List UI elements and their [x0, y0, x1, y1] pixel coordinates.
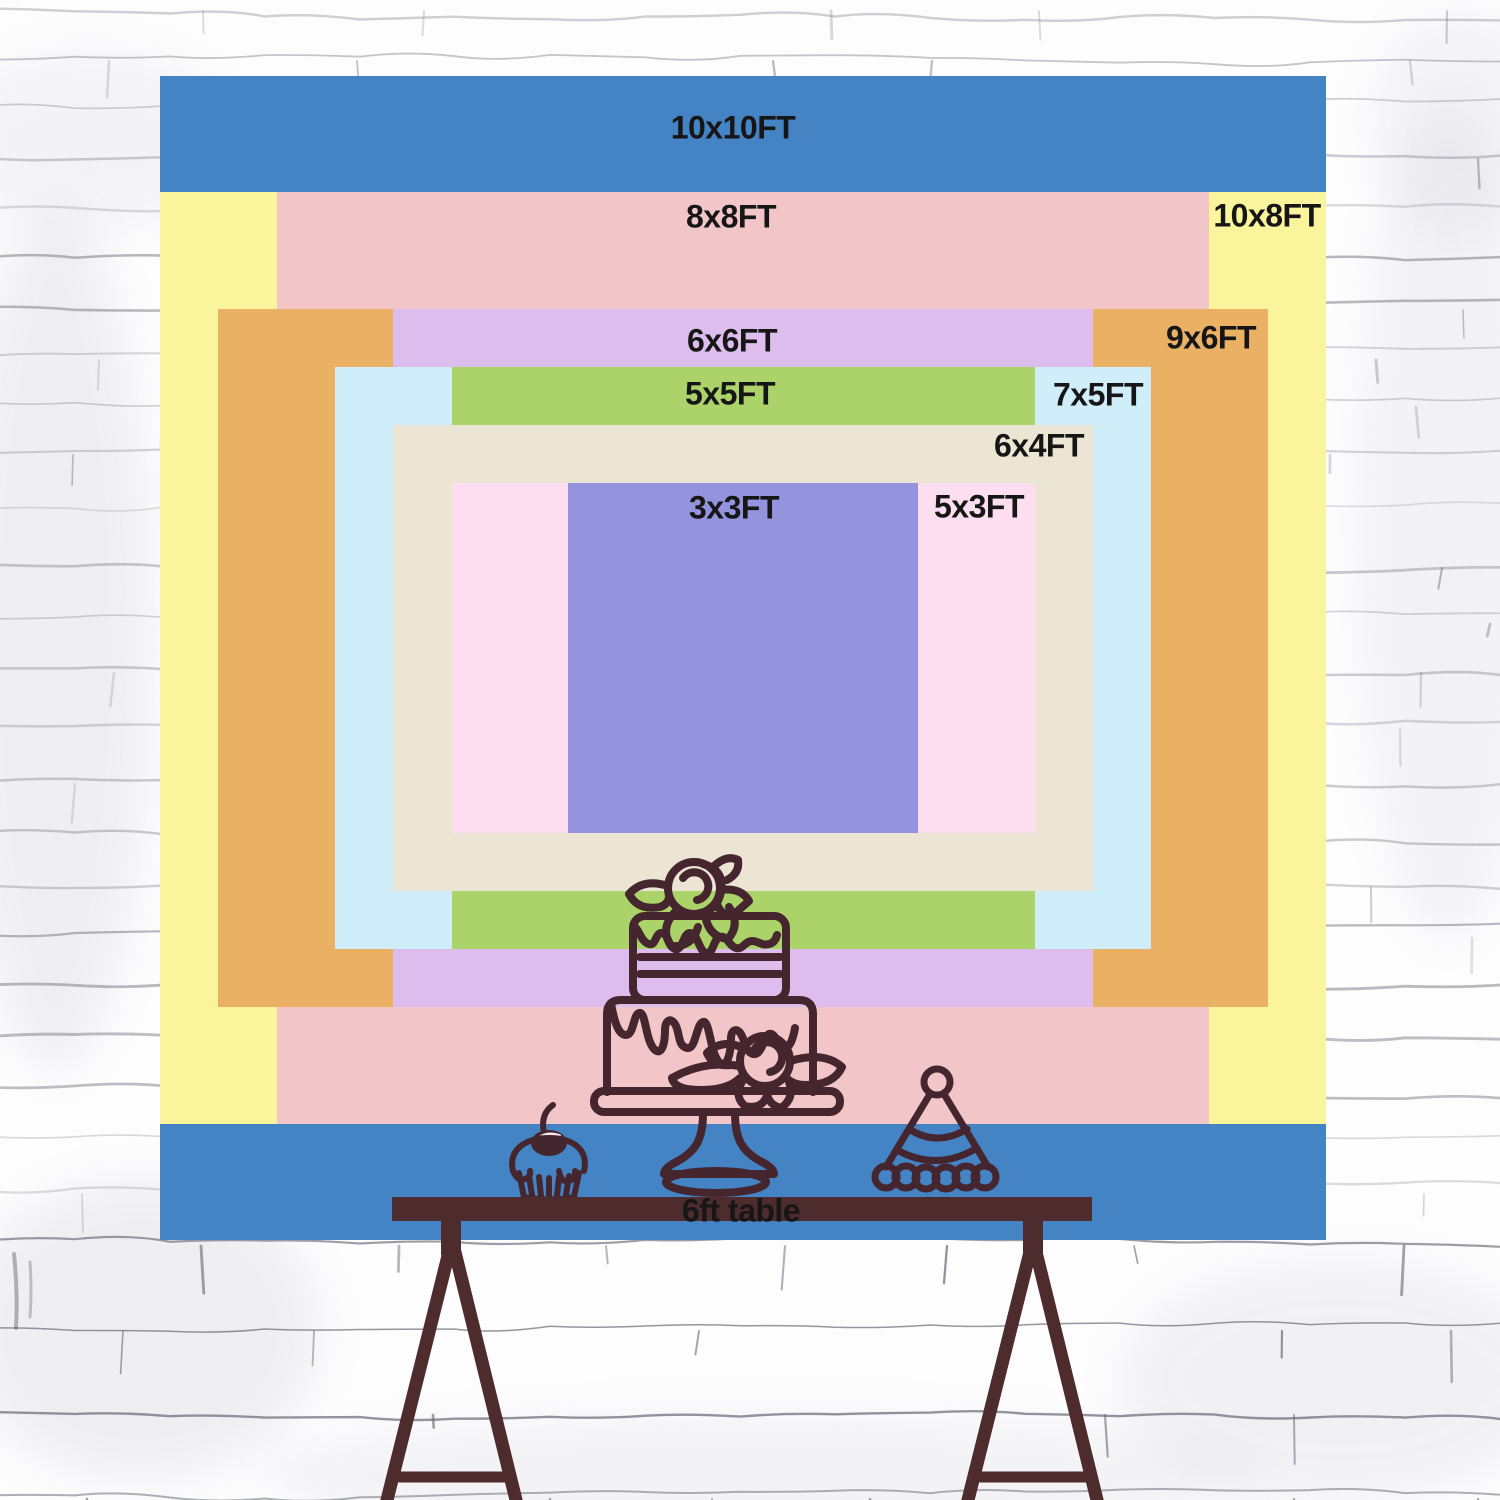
table-right-leg	[967, 1248, 1098, 1500]
cake-stand-plate	[594, 1091, 840, 1112]
cake-stand-stem	[664, 1113, 774, 1174]
cake-stand-foot	[666, 1171, 766, 1193]
table-top	[392, 1197, 1092, 1221]
cherry-stem	[543, 1105, 553, 1133]
illustrations	[0, 0, 1500, 1500]
table-drawing	[386, 1197, 1098, 1500]
backdrop-size-comparison-poster: 6ft table 10x10FT10x8FT8x8FT9x6FT6x6FT7x…	[0, 0, 1500, 1500]
hat-stripe	[897, 1148, 977, 1161]
birthday-cake-drawing	[594, 858, 842, 1193]
cupcake-drawing	[512, 1105, 585, 1200]
party-hat-drawing	[875, 1069, 996, 1189]
hat-stripe	[909, 1129, 967, 1138]
cake-top-icing-drip	[634, 926, 777, 953]
hat-pompom	[924, 1069, 950, 1095]
table-left-leg	[386, 1248, 517, 1500]
hat-trim	[875, 1166, 996, 1189]
